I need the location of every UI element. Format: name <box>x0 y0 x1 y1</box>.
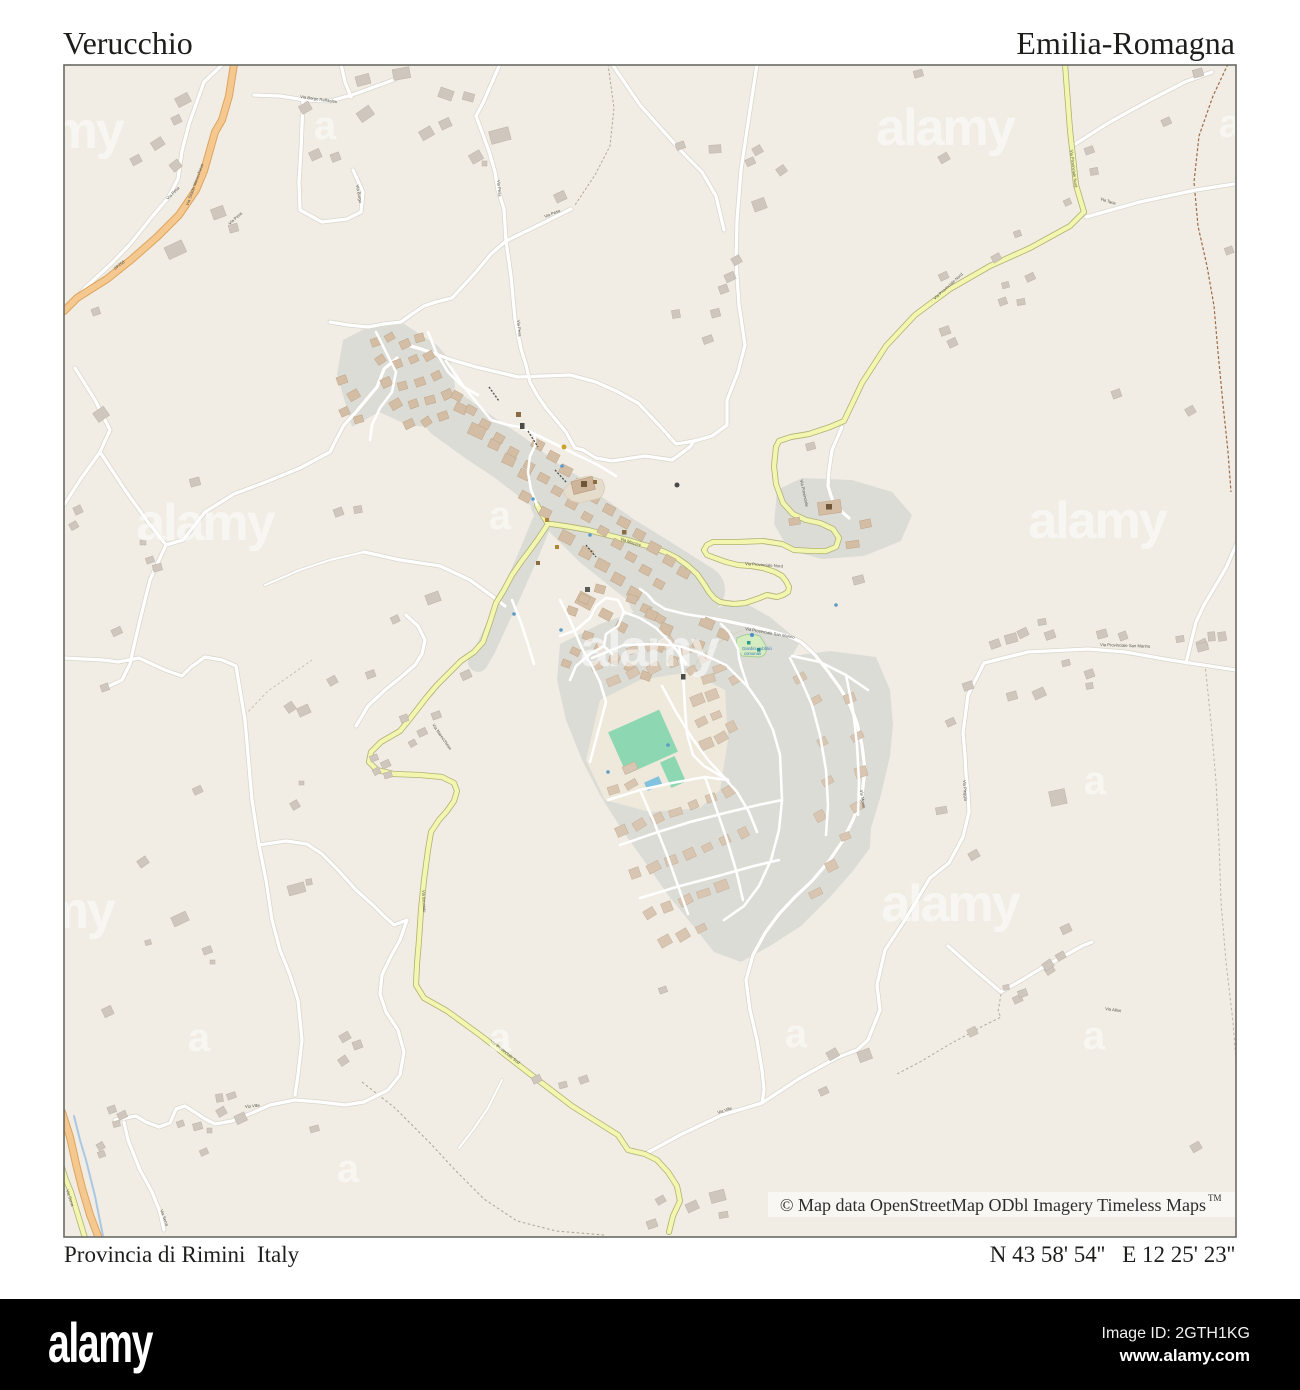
svg-text:TM: TM <box>1208 1193 1222 1203</box>
svg-text:alamy: alamy <box>580 620 720 678</box>
svg-text:comunali: comunali <box>744 651 761 656</box>
svg-text:a: a <box>337 1147 360 1191</box>
svg-text:a: a <box>785 1012 808 1056</box>
svg-text:alamy: alamy <box>48 1311 153 1374</box>
svg-text:Verucchio: Verucchio <box>63 25 193 61</box>
svg-text:Provincia di Rimini Italy: Provincia di Rimini Italy <box>64 1242 300 1267</box>
svg-text:alamy: alamy <box>136 494 276 552</box>
svg-text:a: a <box>188 1016 211 1060</box>
svg-text:© Map data OpenStreetMap ODbl: © Map data OpenStreetMap ODbl Imagery Ti… <box>780 1195 1206 1215</box>
svg-text:a: a <box>489 1016 512 1060</box>
svg-text:a: a <box>314 104 337 148</box>
svg-text:Image ID: 2GTH1KG: Image ID: 2GTH1KG <box>1102 1325 1251 1342</box>
svg-text:Emilia-Romagna: Emilia-Romagna <box>1016 25 1235 61</box>
svg-text:a: a <box>1083 1014 1106 1058</box>
svg-text:a: a <box>489 494 512 538</box>
svg-text:www.alamy.com: www.alamy.com <box>1119 1346 1250 1365</box>
svg-text:a: a <box>1084 759 1107 803</box>
svg-text:alamy: alamy <box>1028 492 1168 550</box>
svg-text:alamy: alamy <box>881 875 1021 933</box>
svg-text:N 43 58' 54'' E 12 25' 23'': N 43 58' 54'' E 12 25' 23'' <box>990 1242 1235 1267</box>
svg-text:alamy: alamy <box>876 99 1016 157</box>
